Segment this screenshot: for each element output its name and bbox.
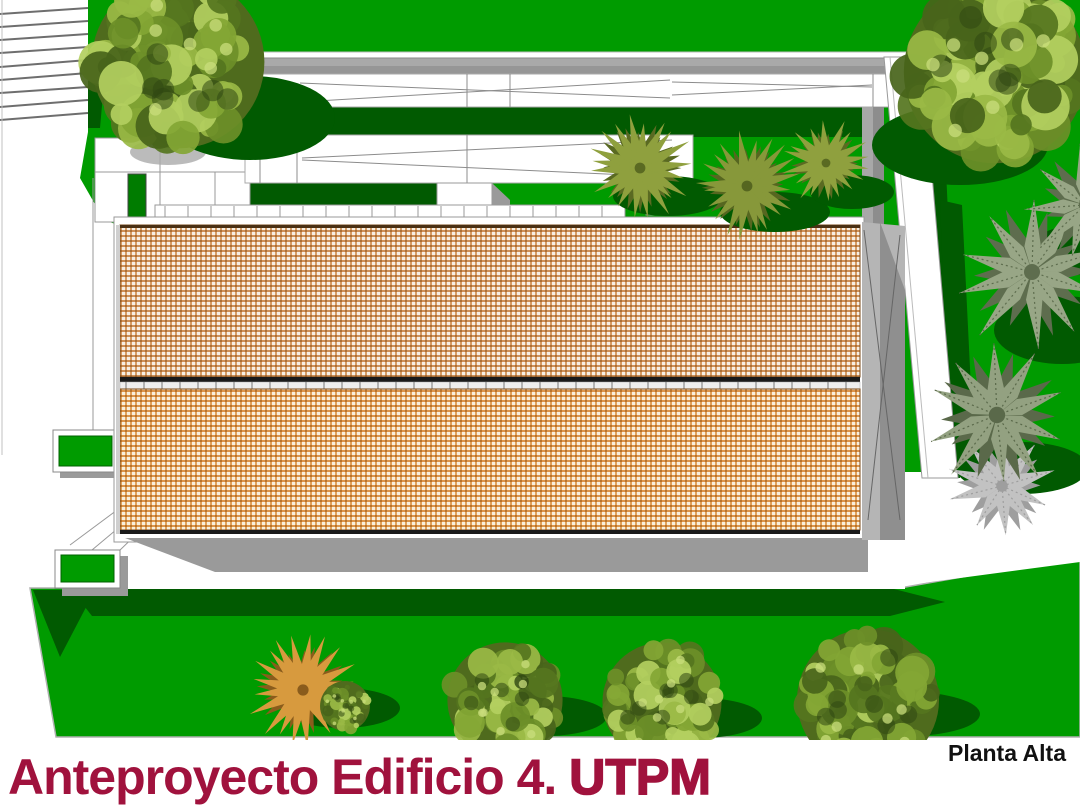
- planter-strip: [128, 174, 146, 220]
- roof-ridge: [120, 377, 860, 382]
- org-acronym-text: UTPM: [569, 749, 711, 805]
- roof-slab-upper: [120, 225, 860, 377]
- building-shadow: [125, 538, 868, 572]
- project-title-text: Anteproyecto Edificio 4.: [8, 749, 556, 805]
- roof-slab-lower: [120, 389, 860, 530]
- planter-box: [55, 550, 128, 596]
- plan-level-label: Planta Alta: [948, 740, 1066, 767]
- site-plan-drawing: [0, 0, 1080, 740]
- site-plan-sheet: Anteproyecto Edificio 4. UTPM Planta Alt…: [0, 0, 1080, 812]
- sheet-title: Anteproyecto Edificio 4. UTPM: [8, 748, 711, 806]
